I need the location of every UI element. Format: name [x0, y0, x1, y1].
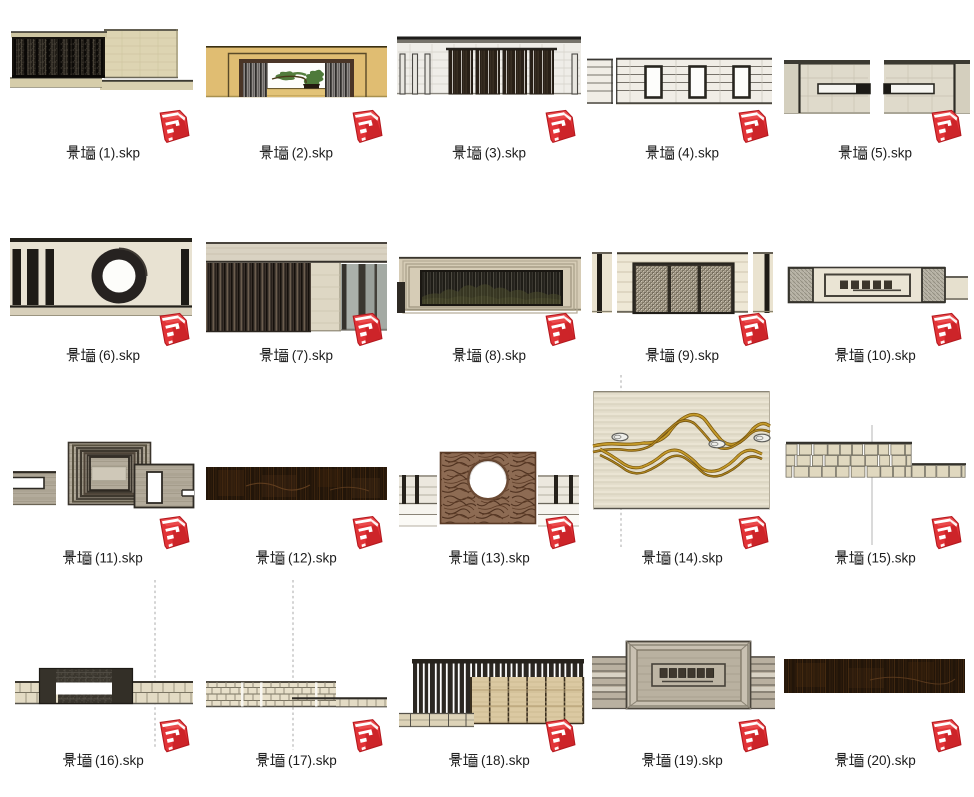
- svg-text:(12).skp: (12).skp: [288, 551, 337, 566]
- svg-text:(16).skp: (16).skp: [95, 753, 144, 768]
- svg-text:(3).skp: (3).skp: [485, 146, 526, 161]
- svg-text:(19).skp: (19).skp: [674, 753, 723, 768]
- svg-text:(17).skp: (17).skp: [288, 753, 337, 768]
- svg-text:(4).skp: (4).skp: [678, 146, 719, 161]
- svg-text:(10).skp: (10).skp: [867, 348, 916, 363]
- svg-text:(6).skp: (6).skp: [99, 348, 140, 363]
- svg-text:(15).skp: (15).skp: [867, 551, 916, 566]
- svg-text:(5).skp: (5).skp: [871, 146, 912, 161]
- svg-text:(2).skp: (2).skp: [292, 146, 333, 161]
- svg-text:(13).skp: (13).skp: [481, 551, 530, 566]
- svg-text:(9).skp: (9).skp: [678, 348, 719, 363]
- svg-text:(20).skp: (20).skp: [867, 753, 916, 768]
- svg-text:(7).skp: (7).skp: [292, 348, 333, 363]
- svg-text:(14).skp: (14).skp: [674, 551, 723, 566]
- svg-text:(18).skp: (18).skp: [481, 753, 530, 768]
- svg-text:(1).skp: (1).skp: [99, 146, 140, 161]
- svg-text:(11).skp: (11).skp: [95, 551, 143, 566]
- svg-text:(8).skp: (8).skp: [485, 348, 526, 363]
